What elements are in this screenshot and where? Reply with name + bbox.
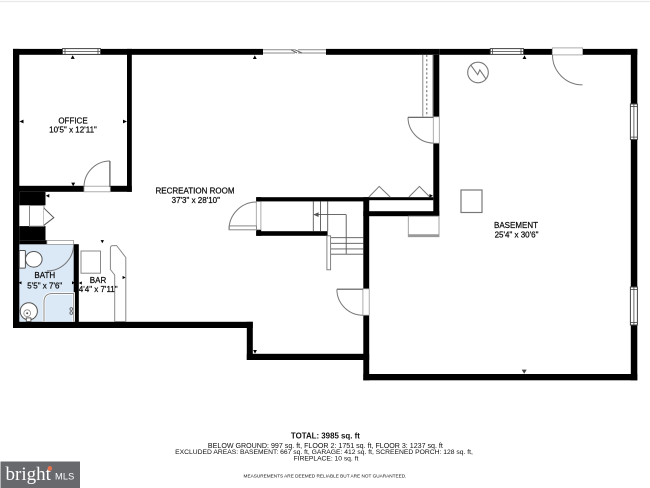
svg-text:bright: bright (6, 464, 52, 485)
svg-text:BASEMENT: BASEMENT (494, 221, 538, 230)
svg-text:RECREATION ROOM: RECREATION ROOM (156, 187, 235, 196)
svg-text:5'5" x 7'6": 5'5" x 7'6" (27, 281, 62, 290)
svg-text:FIREPLACE: 10 sq. ft: FIREPLACE: 10 sq. ft (294, 455, 359, 462)
svg-text:37'3" x 28'10": 37'3" x 28'10" (172, 196, 220, 205)
svg-text:25'4" x 30'6": 25'4" x 30'6" (495, 231, 539, 240)
svg-text:4'4" x 7'11": 4'4" x 7'11" (79, 285, 118, 294)
svg-text:BATH: BATH (34, 271, 55, 280)
svg-text:MLS: MLS (55, 472, 75, 482)
svg-text:BAR: BAR (90, 276, 107, 285)
svg-text:TOTAL: 3985 sq. ft: TOTAL: 3985 sq. ft (291, 431, 360, 440)
svg-text:MEASUREMENTS ARE DEEMED RELIAB: MEASUREMENTS ARE DEEMED RELIABLE BUT ARE… (244, 473, 407, 478)
svg-text:10'5" x 12'11": 10'5" x 12'11" (49, 126, 97, 135)
svg-text:OFFICE: OFFICE (58, 116, 87, 125)
